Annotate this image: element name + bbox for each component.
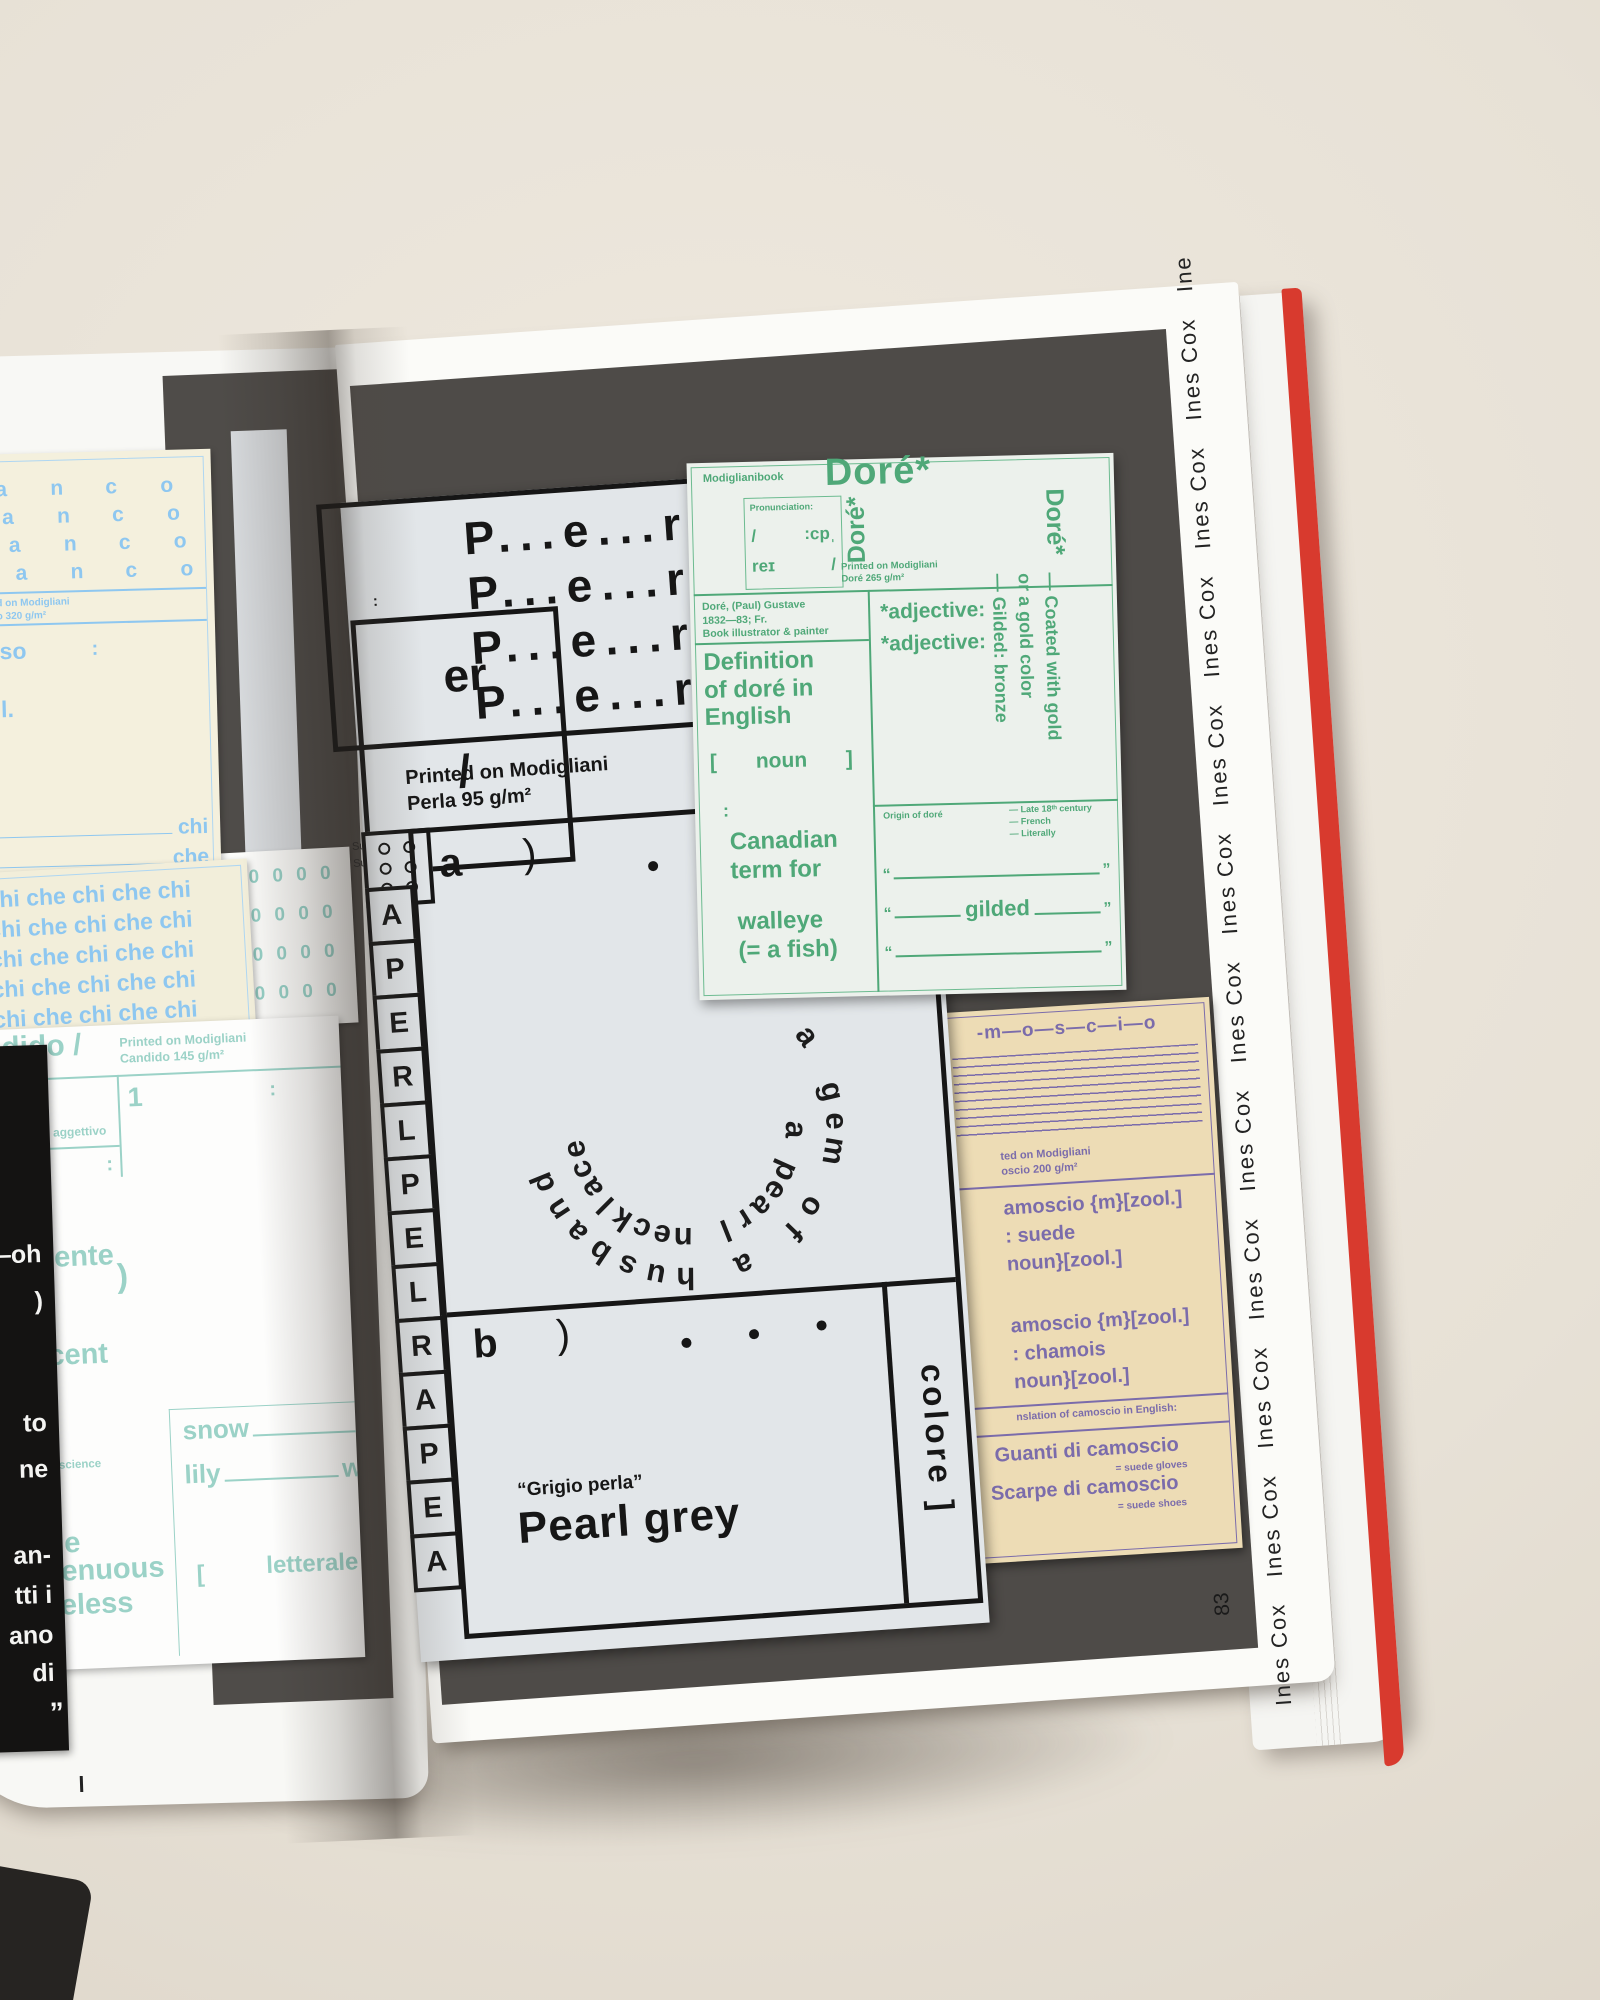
strip-letter: L <box>391 1262 444 1323</box>
stock-frag: o 320 g/m² <box>0 609 70 623</box>
black-card-fragment: di <box>32 1659 55 1689</box>
printed-frag: d on Modigliani <box>0 596 70 610</box>
term-line: walleye <box>737 906 837 937</box>
circle-letter: n <box>537 1191 577 1227</box>
heading-line: English <box>704 701 815 731</box>
anco-letter: n <box>50 473 106 502</box>
word: lily <box>184 1458 221 1490</box>
anco-letter: a <box>0 475 51 504</box>
rule <box>895 915 961 919</box>
chiche-rows: chi che chi che chichi che chi che chich… <box>0 874 198 1035</box>
bracket: [ <box>710 751 718 775</box>
rule-label: chi <box>178 815 209 840</box>
ipa-line: reɪ / <box>752 555 836 577</box>
camoscio-printed-on: ted on Modigliani oscio 200 g/m² <box>1000 1144 1092 1179</box>
circle-letter: o <box>792 1189 833 1224</box>
circle-letter: g <box>813 1078 852 1105</box>
noun-label: noun <box>756 749 808 774</box>
anco-letter: c <box>112 500 168 529</box>
circle-letter: d <box>523 1167 563 1198</box>
anco-letter: n <box>57 501 113 530</box>
colon: : <box>106 1153 114 1176</box>
rule <box>0 833 172 839</box>
heading-line: Definition <box>703 646 814 676</box>
black-card-fragment: tti i <box>14 1581 52 1611</box>
strip-letter: A <box>365 885 418 946</box>
strip-letter: A <box>399 1370 452 1431</box>
ruled-lines <box>952 1044 1203 1143</box>
anco-letter: a <box>15 558 71 587</box>
colore-vertical-label: colore ] <box>913 1363 961 1516</box>
definition-line: : suede <box>1005 1221 1076 1248</box>
ring-dot <box>378 842 391 855</box>
anco-letter: a <box>8 531 64 560</box>
meaning-line: — Gilded: bronze <box>985 573 1017 796</box>
circle-letter: b <box>582 1232 618 1272</box>
circle-letter: n <box>674 1219 693 1255</box>
strip-letter: P <box>384 1154 437 1215</box>
strip-letter: R <box>376 1046 429 1107</box>
ipa-open: / <box>751 527 756 547</box>
adjective-label: *adjective: <box>880 598 986 625</box>
right-page-print-area: -m—o—s—c—i—o ted on Modigliani oscio 200… <box>350 329 1258 1705</box>
circle-letter: a <box>778 1120 815 1138</box>
biography: Doré, (Paul) Gustave 1832—83; Fr. Book i… <box>702 598 829 642</box>
gilded-word: gilded <box>965 895 1030 923</box>
anco-rows: ancoancoancoanco <box>0 470 222 589</box>
strip-letter: P <box>403 1423 456 1484</box>
definition-term: walleye (= a fish) <box>737 906 838 966</box>
colon: : <box>372 593 378 610</box>
circle-letter: u <box>643 1255 668 1294</box>
ring-dot <box>380 862 393 875</box>
quote-mark: “ <box>882 866 890 884</box>
colon: : <box>723 800 730 821</box>
anco-letter: c <box>118 528 174 557</box>
circle-letter: a <box>788 1019 827 1054</box>
anco-letter: c <box>105 472 161 501</box>
origin-notes: — Late 18ᵗʰ century — French — Literally <box>1009 802 1093 840</box>
dore-printed-on: Printed on Modigliani Doré 265 g/m² <box>841 559 938 585</box>
quote-mark: ” <box>1104 939 1112 957</box>
circle-letter: a <box>558 1214 596 1252</box>
word-fragment: l. <box>1 696 14 723</box>
circle-letter: h <box>676 1259 695 1295</box>
rule-row: snow <box>182 1408 361 1447</box>
anco-letter: a <box>2 503 58 532</box>
quote-mark: ” <box>1103 900 1111 918</box>
circle-letter: a <box>729 1245 759 1285</box>
right-page: -m—o—s—c—i—o ted on Modigliani oscio 200… <box>335 282 1336 1744</box>
bianco-card: ancoancoancoanco d on Modigliani o 320 g… <box>0 449 222 884</box>
rule <box>225 1475 339 1482</box>
circle-letter: f <box>777 1215 810 1247</box>
black-card-fragments: eer—oh)tonean-tti ianodi” <box>0 1045 47 1048</box>
word-fragment: eless <box>60 1587 134 1623</box>
word-letterale: letterale <box>266 1548 359 1580</box>
anco-letter: n <box>70 557 126 586</box>
dore-card: Modiglianibook Doré* Pronunciation: / ˈd… <box>687 453 1127 1000</box>
definition-term: Canadian term for <box>729 826 838 886</box>
dore-title-vertical: Doré* <box>841 477 872 564</box>
bracket: ] <box>846 747 854 771</box>
anco-letter: n <box>63 529 119 558</box>
origin-label: Origin of doré <box>883 809 943 820</box>
black-card-fragment: ne <box>19 1455 49 1485</box>
page-number-wrap: 83 <box>1210 1591 1250 1657</box>
pronunciation-label: Pronunciation: <box>749 501 813 513</box>
heading-line: of doré in <box>704 674 815 704</box>
rule <box>894 872 1100 879</box>
ipa-flipped: ˈdɔ: <box>804 525 836 546</box>
term-line: (= a fish) <box>738 935 838 966</box>
ipa-tail: reɪ <box>752 556 775 577</box>
page-number: 83 <box>1210 1592 1236 1617</box>
black-card-fragment: ) <box>34 1287 43 1316</box>
circle-letter: m <box>814 1134 854 1167</box>
pronunciation-box: Pronunciation: / ˈdɔ: reɪ / <box>743 496 843 590</box>
divider-line <box>117 1075 123 1177</box>
word-fragment: enuous <box>61 1551 165 1588</box>
quote-mark: ” <box>1102 861 1110 879</box>
printed-on: Printed on Modigliani <box>841 559 938 573</box>
quote-mark: “ <box>884 944 892 962</box>
rule-row: lily w <box>184 1452 363 1491</box>
meaning-line: — Coated with gold <box>1037 572 1069 795</box>
black-card-fragment: to <box>23 1409 48 1439</box>
label-aggettivo: aggettivo <box>53 1123 107 1139</box>
stock: Doré 265 g/m² <box>841 571 938 585</box>
black-card-fragment: ” <box>49 1697 64 1729</box>
circle-letter: e <box>818 1112 855 1130</box>
rule <box>253 1430 357 1436</box>
black-card-fragment: ano <box>9 1621 54 1651</box>
definition-heading: Definition of doré in English <box>703 646 816 731</box>
strip-letter: A <box>410 1531 463 1592</box>
strip-letter: P <box>369 939 422 1000</box>
adjective-label: *adjective: <box>881 630 987 657</box>
strip-letter: R <box>395 1316 448 1377</box>
strip-letter: E <box>406 1477 459 1538</box>
divider-line <box>0 1066 341 1085</box>
camoscio-card: -m—o—s—c—i—o ted on Modigliani oscio 200… <box>938 997 1243 1565</box>
origin-note: — Late 18ᵗʰ century <box>1009 802 1092 816</box>
colon: : <box>91 638 98 661</box>
quote-rule-row: “ gilded ” <box>883 893 1112 925</box>
bracket: [ <box>196 1561 205 1589</box>
circle-letter: s <box>612 1246 642 1286</box>
anco-letter: c <box>125 556 181 585</box>
strip-letter: E <box>373 993 426 1054</box>
photo-of-book-spread: 0 0 0 0 00 0 0 0 00 0 0 0 00 0 0 0 0 anc… <box>0 0 1600 2000</box>
strip-letter: E <box>388 1208 441 1269</box>
bianco-printed-on: d on Modigliani o 320 g/m² <box>0 596 70 623</box>
quote-mark: “ <box>883 905 891 923</box>
word: snow <box>182 1413 250 1447</box>
item-b-label: b <box>472 1321 500 1368</box>
black-card-fragment: an- <box>13 1541 51 1571</box>
black-card-fragment: eer—oh <box>0 1240 42 1272</box>
term-line: term for <box>730 855 839 886</box>
snow-lily-cell: snow lily w [ letterale <box>169 1401 366 1656</box>
term-line: Canadian <box>729 826 838 857</box>
word-fragment: so <box>0 638 27 666</box>
colon: : <box>269 1078 277 1101</box>
brand: Modiglianibook <box>703 471 784 485</box>
anco-letter: o <box>160 471 216 500</box>
rule <box>1035 911 1101 915</box>
registration-mark <box>80 1776 84 1792</box>
strip-letter: L <box>380 1100 433 1161</box>
number: 1 <box>127 1082 143 1114</box>
origin-note: — Literally <box>1010 826 1093 840</box>
ipa-line: / ˈdɔ: <box>751 525 835 547</box>
circle-letter: l <box>715 1211 736 1248</box>
adjective-meaning-vertical: — Coated with gold or a gold color — Gil… <box>985 572 1069 796</box>
ipa-close: / <box>831 555 836 575</box>
paren: ) <box>116 1257 129 1295</box>
candido-printed-on: Printed on Modigliani Candido 145 g/m² <box>119 1029 247 1067</box>
rule <box>896 950 1102 957</box>
word-fragment-er: er <box>441 646 488 703</box>
